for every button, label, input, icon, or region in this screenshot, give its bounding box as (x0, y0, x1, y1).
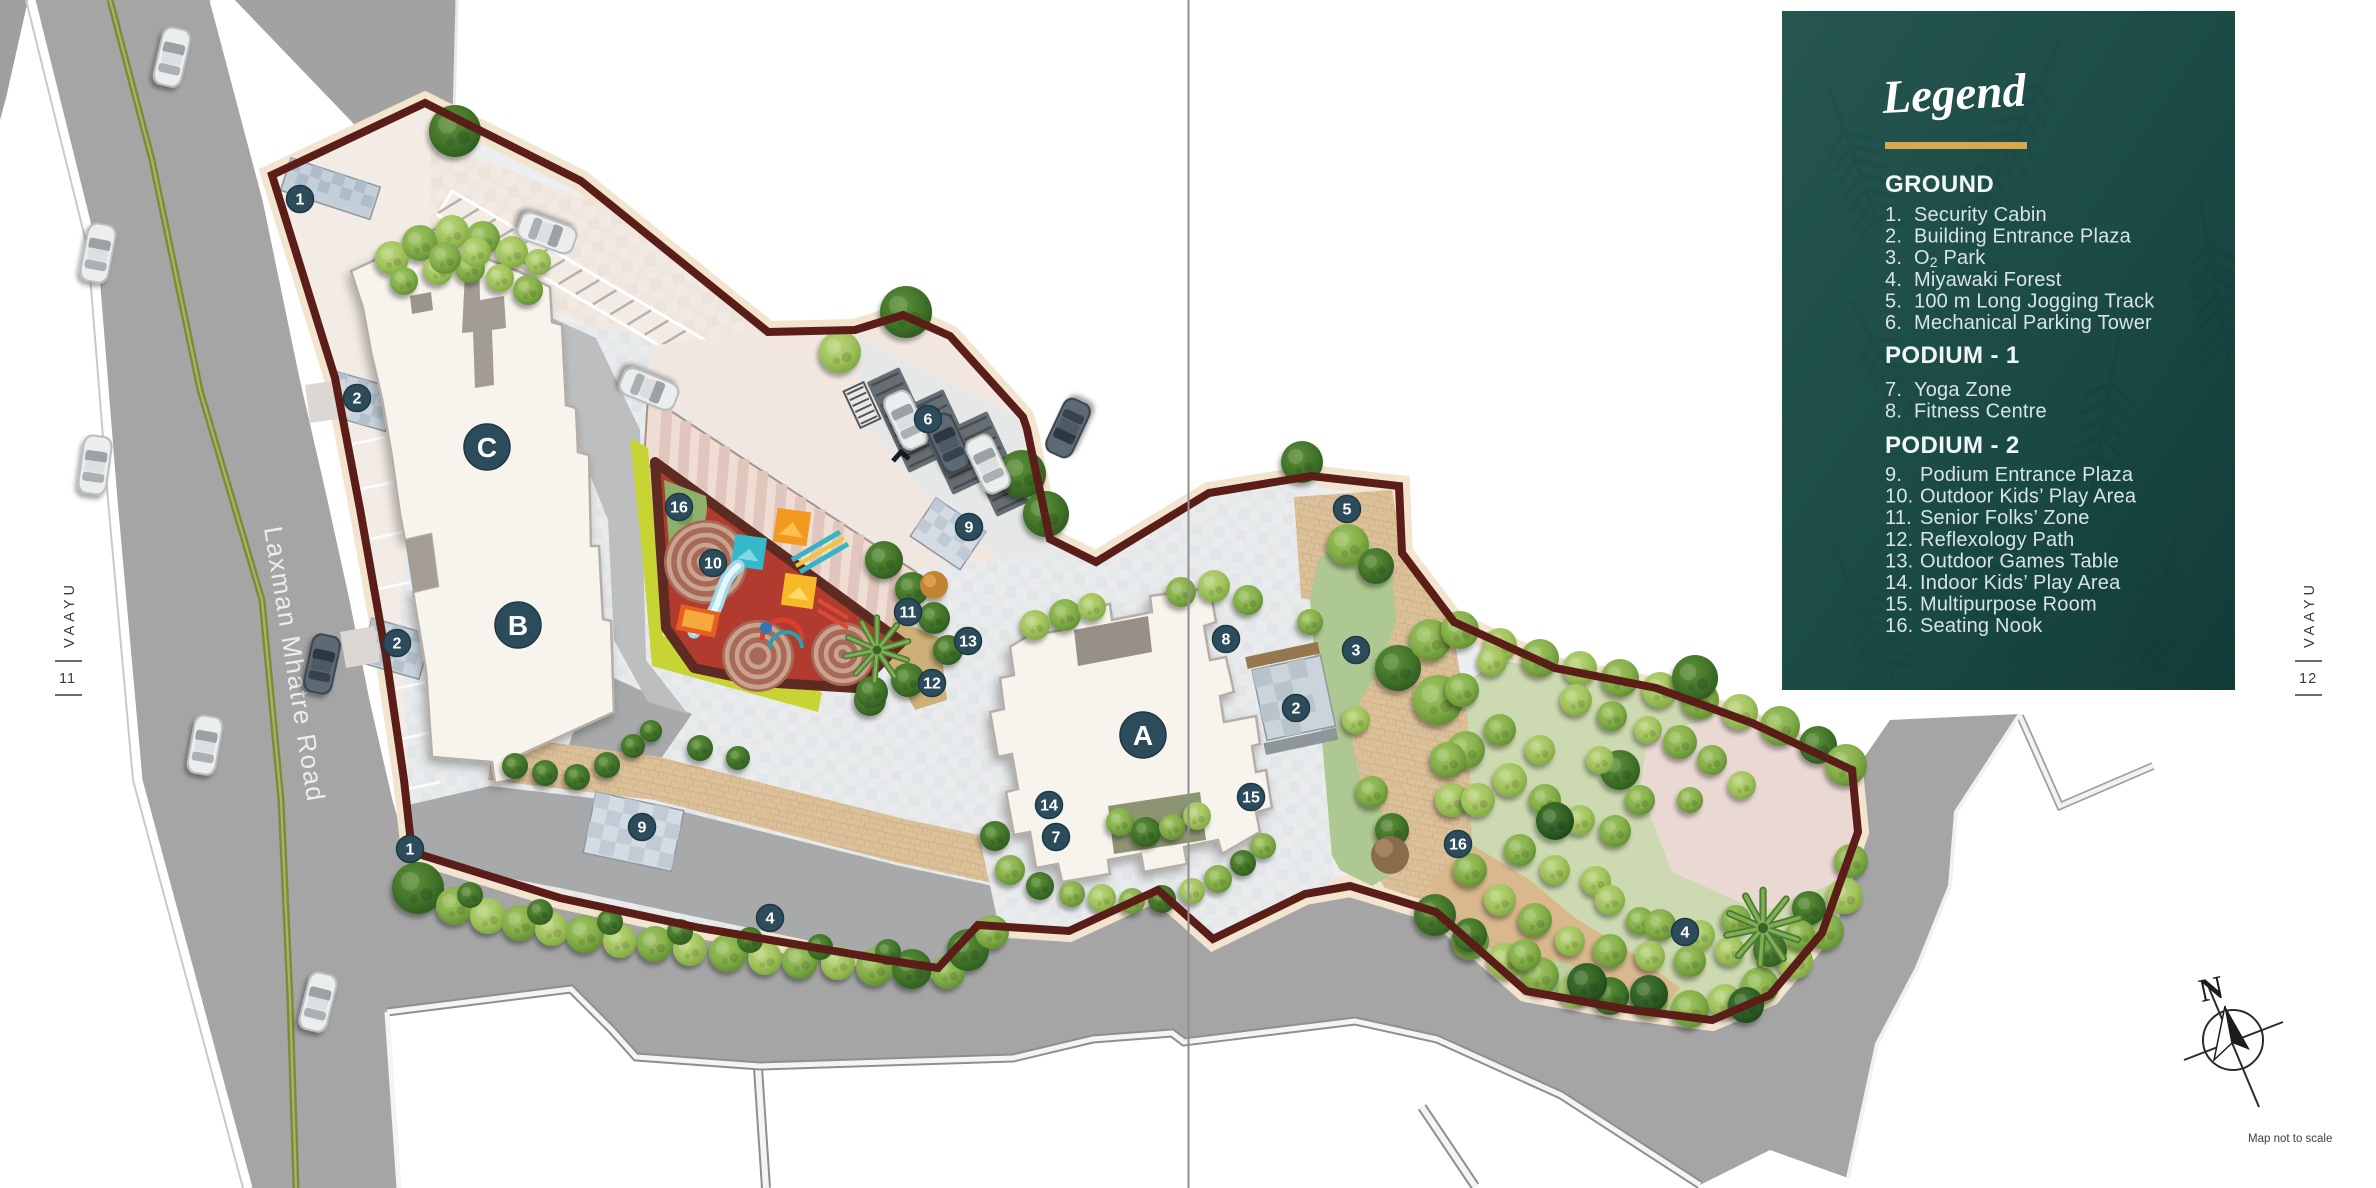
svg-text:9.: 9. (1885, 464, 1902, 486)
svg-text:8: 8 (1222, 632, 1231, 649)
svg-text:1: 1 (406, 842, 415, 859)
svg-text:14.: 14. (1885, 572, 1913, 594)
svg-text:4: 4 (1681, 925, 1690, 942)
svg-text:Podium Entrance Plaza: Podium Entrance Plaza (1920, 464, 2134, 486)
svg-text:Building Entrance Plaza: Building Entrance Plaza (1914, 226, 2132, 248)
svg-text:3.: 3. (1885, 247, 1902, 269)
svg-text:Mechanical Parking Tower: Mechanical Parking Tower (1914, 312, 2152, 334)
svg-text:Indoor Kids’ Play Area: Indoor Kids’ Play Area (1920, 572, 2121, 594)
svg-text:11: 11 (900, 605, 917, 622)
svg-text:16: 16 (670, 500, 688, 517)
svg-text:Multipurpose Room: Multipurpose Room (1920, 594, 2097, 616)
svg-text:2: 2 (1292, 701, 1301, 718)
svg-text:VAAYU: VAAYU (62, 581, 78, 648)
svg-text:16: 16 (1449, 837, 1467, 854)
svg-text:C: C (477, 432, 497, 463)
svg-text:16.: 16. (1885, 615, 1913, 637)
svg-text:B: B (508, 610, 528, 641)
svg-text:13: 13 (959, 634, 977, 651)
svg-text:Miyawaki Forest: Miyawaki Forest (1914, 269, 2062, 291)
svg-text:14: 14 (1040, 798, 1058, 815)
svg-text:2: 2 (393, 636, 402, 653)
svg-text:4.: 4. (1885, 269, 1902, 291)
svg-text:4: 4 (766, 911, 775, 928)
svg-text:1: 1 (296, 192, 305, 209)
svg-text:Outdoor Games Table: Outdoor Games Table (1920, 550, 2119, 572)
svg-text:GROUND: GROUND (1885, 171, 1994, 198)
svg-text:1.: 1. (1885, 204, 1902, 226)
svg-text:9: 9 (965, 520, 974, 537)
svg-text:10.: 10. (1885, 486, 1913, 508)
svg-text:5: 5 (1343, 502, 1352, 519)
svg-text:11.: 11. (1885, 507, 1912, 529)
svg-text:Outdoor Kids’ Play Area: Outdoor Kids’ Play Area (1920, 486, 2137, 508)
svg-text:Legend: Legend (1880, 65, 2029, 125)
svg-text:7.: 7. (1885, 379, 1902, 401)
svg-text:PODIUM - 2: PODIUM - 2 (1885, 432, 2020, 459)
svg-text:7: 7 (1052, 830, 1061, 847)
svg-text:12: 12 (2299, 671, 2317, 687)
svg-text:2: 2 (353, 391, 362, 408)
svg-text:8.: 8. (1885, 401, 1902, 423)
svg-text:PODIUM - 1: PODIUM - 1 (1885, 342, 2020, 369)
svg-text:6: 6 (924, 412, 933, 429)
svg-text:VAAYU: VAAYU (2302, 581, 2318, 648)
svg-text:Yoga Zone: Yoga Zone (1914, 379, 2012, 401)
svg-text:12.: 12. (1885, 529, 1913, 551)
svg-text:100 m Long Jogging Track: 100 m Long Jogging Track (1914, 290, 2155, 312)
svg-text:Senior Folks’ Zone: Senior Folks’ Zone (1920, 507, 2090, 529)
svg-text:O2 Park: O2 Park (1914, 247, 1986, 270)
svg-text:2.: 2. (1885, 226, 1902, 248)
svg-text:15: 15 (1242, 790, 1260, 807)
svg-text:Fitness Centre: Fitness Centre (1914, 401, 2047, 423)
svg-text:6.: 6. (1885, 312, 1902, 334)
svg-text:12: 12 (923, 676, 941, 693)
svg-text:3: 3 (1352, 643, 1361, 660)
svg-text:9: 9 (638, 820, 647, 837)
svg-text:5.: 5. (1885, 290, 1902, 312)
svg-text:13.: 13. (1885, 550, 1913, 572)
svg-text:10: 10 (704, 556, 722, 573)
svg-text:Security Cabin: Security Cabin (1914, 204, 2047, 226)
svg-text:Reflexology Path: Reflexology Path (1920, 529, 2074, 551)
svg-text:A: A (1133, 720, 1153, 751)
svg-text:Map not to scale: Map not to scale (2248, 1133, 2332, 1145)
svg-text:Seating Nook: Seating Nook (1920, 615, 2043, 637)
svg-text:15.: 15. (1885, 594, 1913, 616)
svg-text:11: 11 (59, 671, 76, 687)
